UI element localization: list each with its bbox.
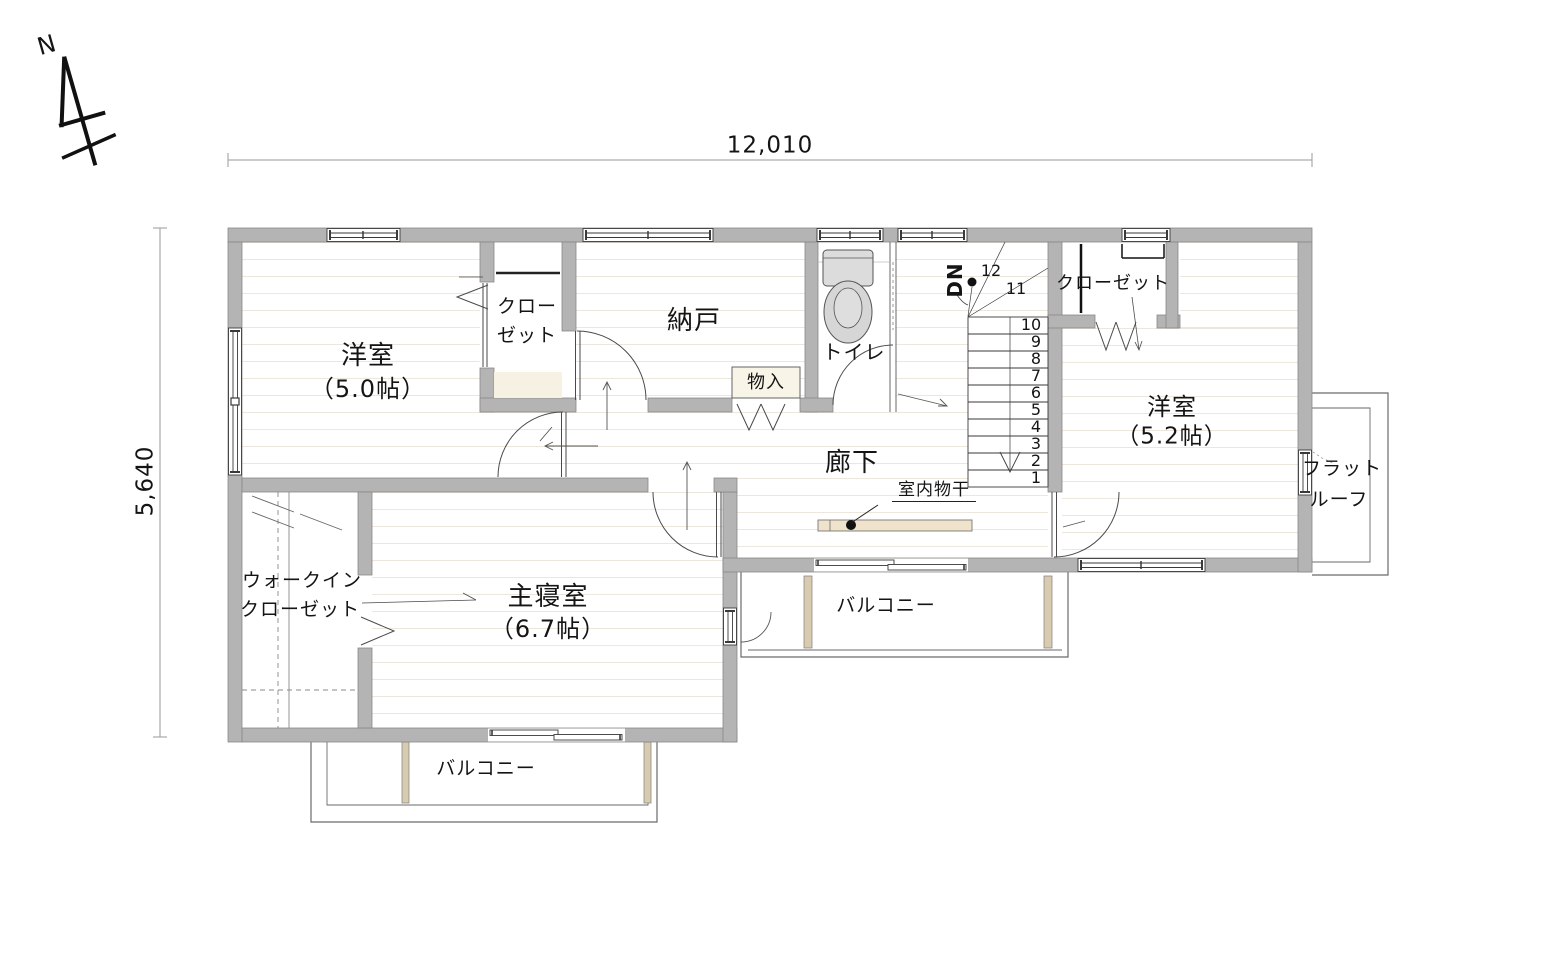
dimension-top: 12,010	[727, 135, 813, 158]
closet-left-label-1: クロー	[497, 298, 557, 317]
indoor-laundry-bar	[818, 505, 972, 531]
wic-label-1: ウォークイン	[242, 572, 362, 591]
master-bedroom-name: 主寝室	[507, 584, 588, 610]
north-arrow-icon	[35, 49, 122, 174]
closet-right-label: クローゼット	[1056, 275, 1170, 293]
dimension-left: 5,640	[135, 446, 158, 517]
stair-number: 11	[1006, 281, 1026, 297]
flat-roof-outline	[1312, 393, 1388, 575]
window-master-balcony	[488, 729, 625, 742]
stair-number: 10	[1021, 317, 1041, 333]
door-closet-right-folding	[1096, 297, 1142, 350]
window-stairhall-top	[898, 229, 967, 242]
hallway-label: 廊下	[825, 450, 879, 476]
window-closet-right-top	[1122, 229, 1170, 242]
window-storage-top	[583, 229, 713, 242]
window-toilet-top	[817, 229, 883, 242]
window-room1-left	[229, 328, 242, 475]
flat-roof-label-2: ルーフ	[1310, 491, 1369, 510]
balcony-bottom-outline	[311, 742, 657, 822]
balcony-middle-label: バルコニー	[836, 597, 936, 616]
room-western-1-name: 洋室	[341, 343, 395, 369]
closet-left-label-2: ゼット	[497, 327, 557, 346]
stair-number: 8	[1031, 351, 1041, 367]
window-hall-balcony	[814, 559, 968, 572]
stair-number: 5	[1031, 402, 1041, 418]
window-room2-bottom	[1078, 559, 1205, 572]
stairs-dn-label: DN	[945, 262, 965, 297]
room-western-1-size: （5.0帖）	[310, 377, 426, 401]
stair-number: 9	[1031, 334, 1041, 350]
stair-number: 12	[981, 263, 1001, 279]
door-western-room-1	[498, 412, 566, 477]
balcony-bottom-label: バルコニー	[436, 760, 536, 779]
door-storage-small-folding	[737, 404, 785, 430]
stair-number: 3	[1031, 436, 1041, 452]
floor-plan: N 12,010 5,640 洋室 （5.0帖） クロー ゼット 納戸 物入 ト…	[0, 0, 1542, 974]
stair-number: 4	[1031, 419, 1041, 435]
window-room1-top	[327, 229, 400, 242]
master-bedroom-size: （6.7帖）	[490, 617, 606, 641]
stair-number: 7	[1031, 368, 1041, 384]
room-western-2-size: （5.2帖）	[1116, 426, 1228, 449]
toilet-label: トイレ	[823, 342, 886, 362]
stair-number: 1	[1031, 470, 1041, 486]
room-western-2-name: 洋室	[1147, 395, 1197, 419]
door-wic-folding	[361, 593, 476, 645]
stair-number: 2	[1031, 453, 1041, 469]
toilet-fixture	[823, 250, 873, 343]
storage-room-label: 納戸	[667, 308, 721, 334]
walls	[228, 228, 1312, 742]
stair-number: 6	[1031, 385, 1041, 401]
flat-roof-label-1: フラット	[1302, 460, 1382, 479]
indoor-laundry-label: 室内物干	[892, 482, 976, 502]
storage-small-label: 物入	[747, 374, 785, 392]
wic-label-2: クローゼット	[240, 601, 360, 620]
stairs-down-dot	[968, 278, 977, 287]
door-closet-left-folding	[457, 277, 488, 367]
door-western-room-2	[1052, 492, 1119, 557]
